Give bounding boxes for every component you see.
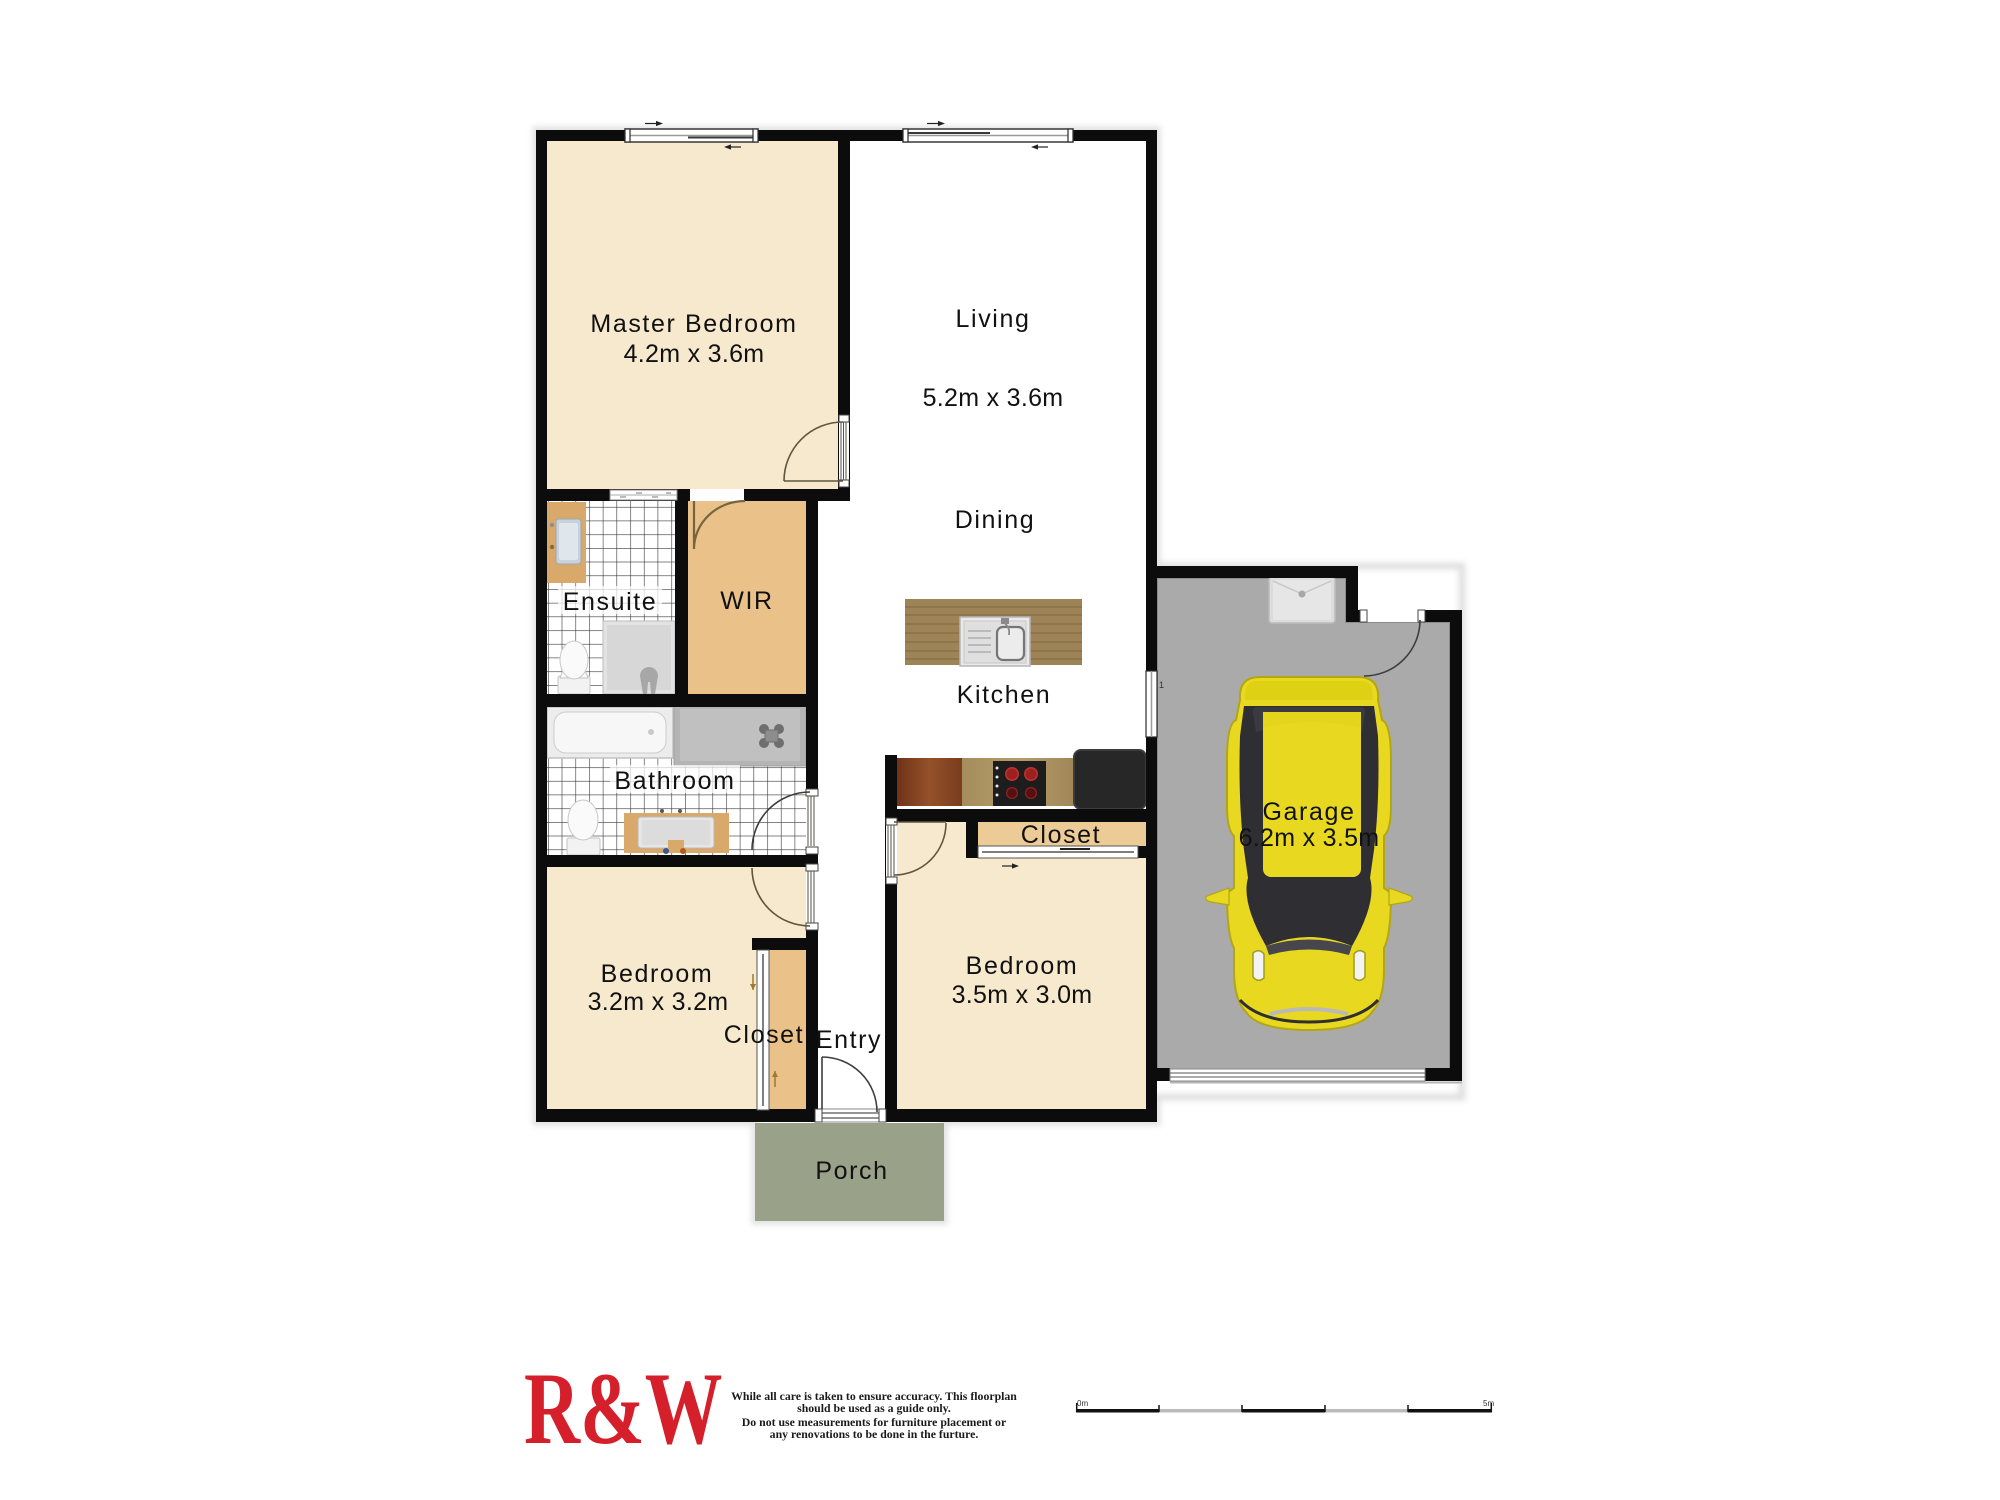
svg-text:3.2m x 3.2m: 3.2m x 3.2m — [588, 988, 729, 1016]
svg-text:Closet: Closet — [724, 1021, 804, 1049]
svg-text:R&W: R&W — [524, 1352, 722, 1466]
svg-text:3.5m x 3.0m: 3.5m x 3.0m — [952, 981, 1093, 1009]
svg-text:Dining: Dining — [955, 506, 1035, 534]
svg-text:Ensuite: Ensuite — [563, 588, 658, 616]
svg-text:4.2m x 3.6m: 4.2m x 3.6m — [624, 340, 765, 368]
svg-text:Bathroom: Bathroom — [614, 767, 735, 795]
svg-text:Porch: Porch — [815, 1157, 888, 1185]
svg-text:1: 1 — [1159, 680, 1164, 690]
svg-text:Living: Living — [956, 305, 1031, 333]
svg-text:Kitchen: Kitchen — [957, 681, 1052, 709]
svg-text:6.2m x 3.5m: 6.2m x 3.5m — [1239, 824, 1380, 852]
svg-text:0m: 0m — [1077, 1399, 1088, 1408]
svg-text:Bedroom: Bedroom — [966, 952, 1079, 980]
svg-text:WIR: WIR — [720, 587, 773, 615]
svg-text:Master Bedroom: Master Bedroom — [590, 310, 797, 338]
svg-text:5.2m x 3.6m: 5.2m x 3.6m — [923, 384, 1064, 412]
svg-text:Garage: Garage — [1263, 798, 1356, 826]
svg-text:Bedroom: Bedroom — [601, 960, 714, 988]
svg-text:should be used as a guide only: should be used as a guide only. — [797, 1401, 951, 1415]
svg-text:Closet: Closet — [1021, 821, 1101, 849]
svg-text:any renovations to be done in: any renovations to be done in the furtur… — [770, 1427, 979, 1441]
svg-text:5m: 5m — [1483, 1399, 1494, 1408]
svg-text:Entry: Entry — [816, 1026, 882, 1054]
